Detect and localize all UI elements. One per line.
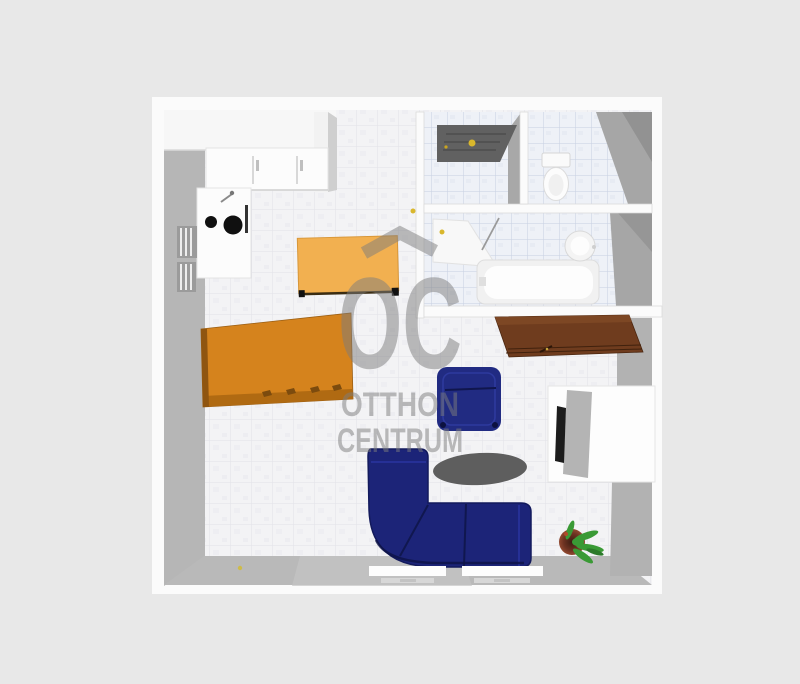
top-wall-block [164, 110, 336, 150]
armchair-foot [492, 422, 498, 428]
stove-burner-small [205, 216, 217, 228]
bathtub-basin [484, 266, 593, 299]
watermark-brand-line2: CENTRUM [337, 422, 463, 460]
balcony-door-handle [238, 566, 242, 570]
wc-room [542, 153, 570, 201]
stove-burner-large [224, 216, 243, 235]
kitchen-counter-top [206, 148, 328, 190]
window-sill [369, 566, 446, 576]
hall-door-handle [411, 209, 416, 214]
cabinet-handle [300, 160, 303, 171]
front-door-handle [469, 140, 476, 147]
wall-stub-face [328, 112, 337, 192]
stove-edge [245, 205, 248, 233]
sink-faucet-icon [230, 191, 234, 195]
front-door-keyhole [444, 145, 447, 148]
washbasin-tap [592, 245, 596, 249]
tv-desk [548, 386, 655, 482]
floorplan-canvas: OC OTTHON CENTRUM [0, 0, 800, 684]
pot-rim [564, 532, 568, 536]
window-latch [494, 579, 510, 582]
left-wall-face [164, 112, 205, 586]
watermark-brand-line1: OTTHON [341, 386, 459, 424]
orange-bed-table [201, 313, 353, 407]
sideboard [495, 315, 643, 357]
table-leg [299, 290, 305, 297]
bathroom-door-handle [440, 230, 445, 235]
washbasin-bowl [571, 237, 590, 256]
wall-hall-bathroom [424, 204, 652, 213]
window-sill [462, 566, 543, 576]
cabinet-handle [256, 160, 259, 171]
toilet-tank [542, 153, 570, 167]
watermark: OC OTTHON CENTRUM [337, 233, 463, 460]
right-wall-face-lower [610, 482, 652, 576]
sideboard-handle-glint [546, 348, 549, 351]
window-latch [400, 579, 416, 582]
kitchen-base-unit [197, 188, 251, 278]
tv-stand-panel [563, 390, 592, 478]
wall-hall-wc [520, 112, 528, 204]
floorplan-viewport: OC OTTHON CENTRUM [0, 0, 800, 684]
watermark-logo-text: OC [338, 250, 462, 396]
bathtub-faucet [479, 277, 486, 286]
toilet-bowl-inner [549, 174, 564, 196]
